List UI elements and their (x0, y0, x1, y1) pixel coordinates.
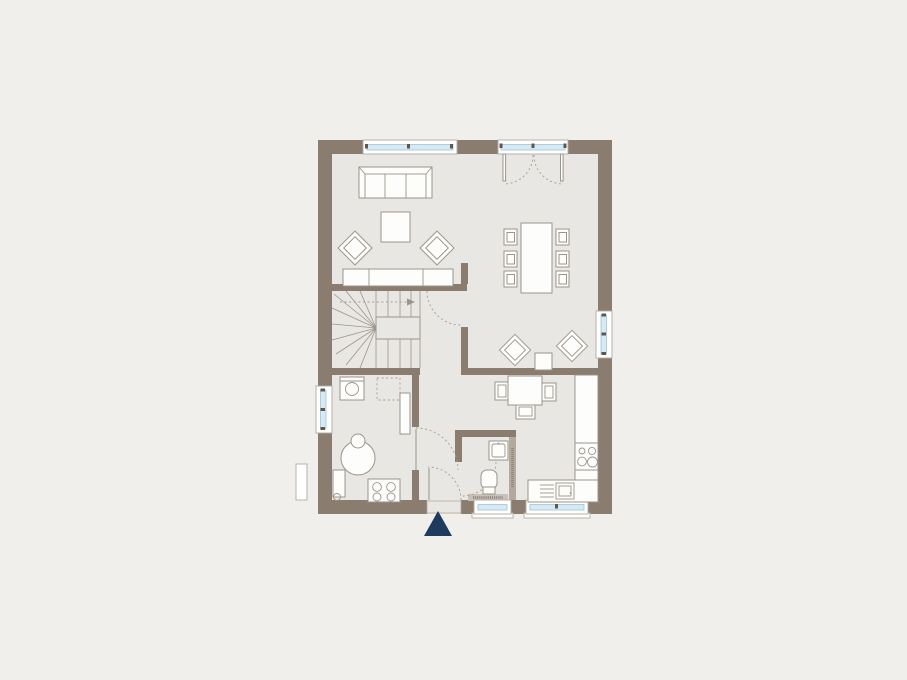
breakfast-table (508, 376, 542, 405)
stair-eye (376, 317, 420, 339)
wall-south-segment (509, 500, 528, 514)
stove-4-ring (368, 479, 400, 502)
door-leaf-right (561, 154, 564, 181)
dining-chair (504, 251, 517, 267)
coffee-table (381, 212, 410, 242)
side-table (535, 353, 552, 370)
wall-utility-hall-upper (412, 375, 419, 427)
dining-area-furniture (504, 223, 569, 293)
kitchen-window (524, 500, 590, 518)
dining-table (521, 223, 552, 293)
living-window (363, 140, 457, 154)
washbasin (489, 441, 508, 460)
wc-window (472, 500, 513, 518)
dining-chair (504, 229, 517, 245)
dining-chair (556, 251, 569, 267)
sideboard (343, 269, 453, 286)
floor-plan-canvas (0, 0, 907, 680)
dining-chair (556, 229, 569, 245)
north-arrow-icon (424, 511, 452, 536)
wall-kitchen-divider (461, 368, 598, 375)
wall-wc-top (455, 430, 516, 437)
wall-east-segment (598, 140, 612, 313)
door-leaf-left (503, 154, 506, 181)
wall-hall-dining (461, 327, 468, 375)
wall-hall-dining-stub (461, 263, 468, 284)
exterior-element (296, 464, 307, 500)
wall-west-segment (318, 431, 332, 514)
side-counter (400, 393, 410, 434)
wall-north-segment (455, 140, 498, 154)
toilet (481, 470, 497, 494)
wall-stairs-utility (332, 368, 420, 375)
wall-east-segment (598, 356, 612, 514)
dining-chair (556, 271, 569, 287)
three-seat-sofa (359, 167, 432, 198)
wall-utility-hall-lower (412, 470, 419, 514)
door-threshold (427, 501, 461, 513)
wall-west-segment (318, 140, 332, 388)
utility-window (316, 386, 332, 433)
wall-wc-left-stub (455, 437, 462, 462)
dining-chair (504, 271, 517, 287)
washing-machine (340, 377, 364, 400)
radiator (333, 470, 345, 497)
dining-window (596, 311, 612, 358)
